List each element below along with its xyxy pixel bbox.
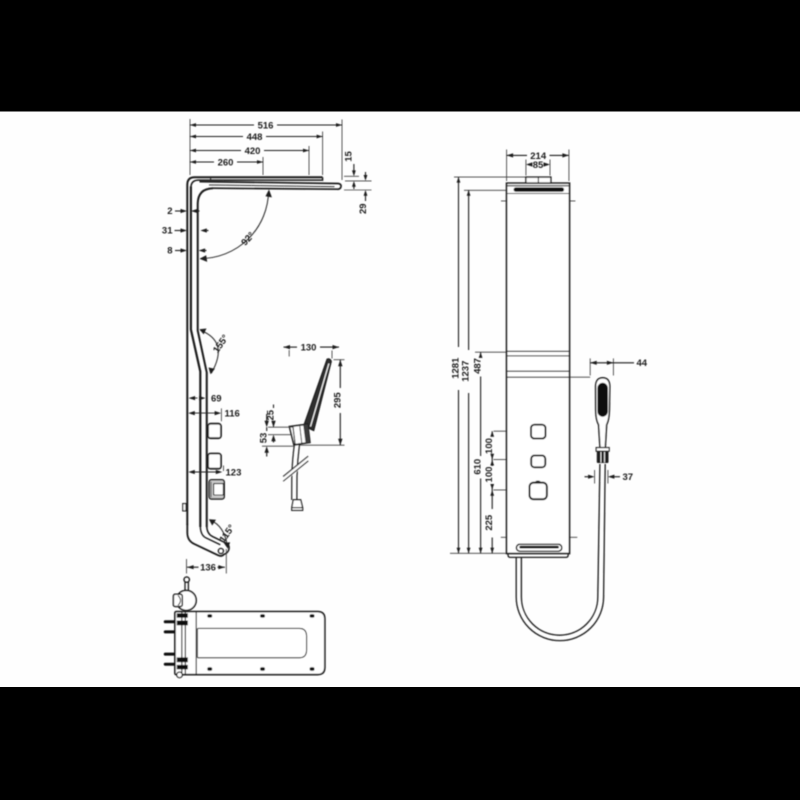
- svg-text:85: 85: [533, 160, 544, 171]
- svg-text:2: 2: [167, 206, 172, 217]
- svg-text:260: 260: [218, 157, 234, 168]
- svg-text:29: 29: [358, 203, 369, 214]
- svg-text:448: 448: [247, 132, 263, 143]
- svg-text:123: 123: [226, 468, 242, 479]
- svg-text:225: 225: [484, 514, 495, 531]
- svg-text:487: 487: [473, 358, 484, 374]
- svg-text:8: 8: [167, 246, 172, 257]
- svg-text:100: 100: [484, 467, 495, 483]
- svg-text:136: 136: [200, 563, 216, 574]
- svg-text:15: 15: [344, 151, 355, 162]
- svg-text:295: 295: [332, 392, 343, 409]
- svg-text:116: 116: [225, 409, 240, 420]
- svg-text:420: 420: [245, 146, 261, 157]
- svg-text:130: 130: [301, 343, 317, 354]
- svg-text:44: 44: [637, 358, 648, 369]
- svg-text:100: 100: [484, 438, 495, 454]
- svg-text:69: 69: [211, 394, 222, 405]
- svg-text:610: 610: [473, 459, 484, 475]
- svg-text:516: 516: [258, 120, 274, 131]
- svg-text:37: 37: [623, 472, 634, 483]
- svg-text:31: 31: [162, 226, 173, 237]
- svg-text:1237: 1237: [461, 361, 472, 382]
- svg-text:53: 53: [259, 433, 270, 444]
